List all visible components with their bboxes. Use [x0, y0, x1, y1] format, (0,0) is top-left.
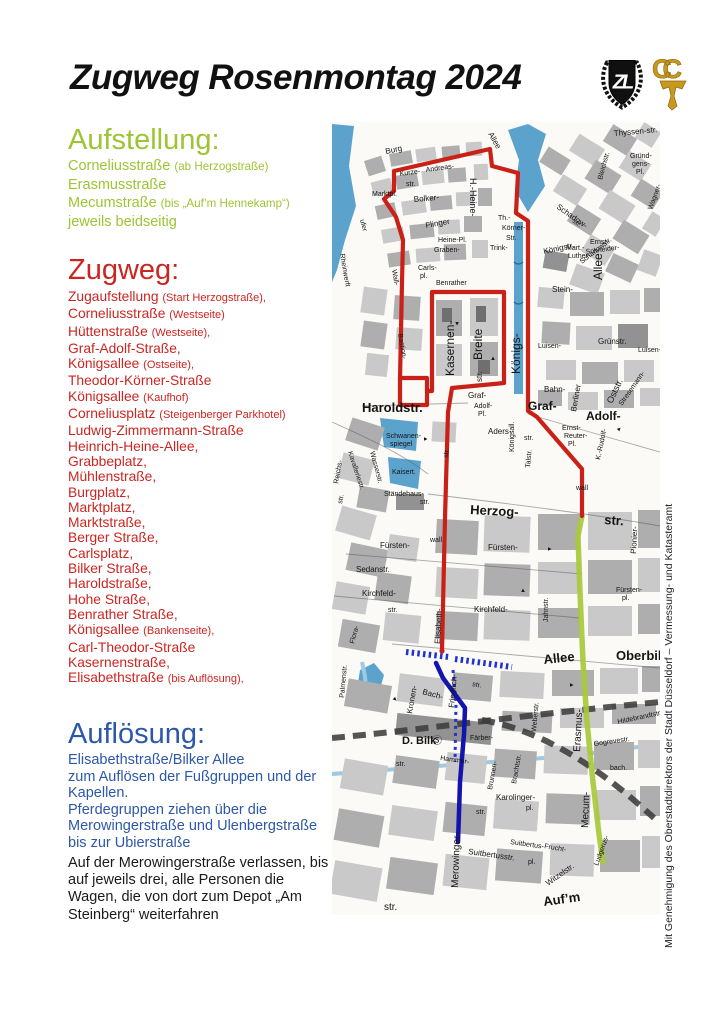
map-street-label: Heine-Pl. [438, 237, 467, 244]
map-street-label: Mecum- [580, 792, 592, 828]
city-block [493, 799, 539, 832]
street-line: Hüttenstraße (Westseite), [68, 324, 286, 341]
city-block [538, 514, 580, 550]
map-street-label: Luisen- [538, 343, 562, 350]
street-line: Königsallee (Bankenseite), [68, 622, 286, 639]
city-block [374, 572, 412, 604]
map-street-label: Benrather [436, 280, 467, 287]
city-block [478, 188, 492, 206]
city-block [431, 421, 456, 442]
street-line: Benrather Straße, [68, 607, 286, 622]
map-street-label: ▲ [546, 546, 552, 552]
map-street-label: bach. [610, 765, 627, 772]
map-street-label: Pl. [568, 441, 576, 448]
page-title: Zugweg Rosenmontag 2024 [70, 58, 521, 98]
map-street-label: wall [575, 485, 589, 492]
map-street-label: Kasernen- [443, 321, 457, 376]
map-street-label: Jahnstr. [543, 597, 550, 622]
map-street-label: Fürsten- [616, 587, 643, 594]
map-street-label: H.-Heine- [468, 178, 478, 217]
street-line: zum Auflösen der Fußgruppen und der [68, 769, 317, 786]
map-credit: Mit Genehmigung des Oberstadtdirektors d… [663, 498, 679, 948]
street-line: Carl-Theodor-Straße [68, 640, 286, 655]
map-street-label: Kaisert. [392, 469, 416, 476]
street-line: Burgplatz, [68, 485, 286, 500]
city-block [396, 673, 445, 706]
city-block [443, 802, 488, 836]
street-line: Steinberg“ weiterfahren [68, 907, 328, 924]
heading-aufstellung: Aufstellung: [68, 124, 220, 157]
cc-letters: CC [652, 54, 681, 84]
map-street-label: Sedanstr. [356, 565, 390, 574]
map-street-label: Aders- [488, 427, 512, 436]
map-street-label: Gründ- [630, 153, 652, 160]
city-block [638, 604, 660, 634]
map-street-label: Pionier- [629, 526, 639, 554]
map-street-label: str. [476, 809, 485, 816]
map-street-label: str. [384, 902, 397, 913]
map-street-label: Carls- [418, 265, 437, 272]
street-line: Auf der Merowingerstraße verlassen, bis [68, 855, 328, 872]
city-block [472, 240, 488, 258]
map-street-label: Erasmus- [572, 709, 585, 752]
city-block [642, 666, 660, 692]
map-street-label: Grünstr. [598, 337, 626, 346]
city-block [644, 288, 660, 312]
map-street-label: ▲ [454, 320, 460, 326]
map-street-label: str. [604, 512, 625, 528]
map-street-label: Elisabeth- [433, 608, 444, 644]
map-street-label: Kirchfeld- [474, 605, 508, 614]
map-street-label: Str. [506, 235, 517, 242]
street-line: auf jeweils drei, alle Personen die [68, 872, 328, 889]
street-line: Zugaufstellung (Start Herzogstraße), [68, 289, 286, 306]
street-line: Mecumstraße (bis „Auf’m Hennekamp“) [68, 194, 290, 213]
city-block [383, 612, 422, 644]
street-line: Corneliusstraße (Westseite) [68, 306, 286, 323]
street-line: Erasmusstraße [68, 176, 290, 194]
map-street-label: pl. [526, 805, 533, 812]
map-street-label: Marktpl. [372, 191, 397, 198]
street-line: Merowingerstraße und Ulenbergstraße [68, 818, 317, 835]
city-block [610, 290, 640, 314]
map-street-label: Allee [591, 253, 605, 280]
street-line: Haroldstraße, [68, 576, 286, 591]
map-street-label: Stein- [552, 285, 573, 294]
map-street-label: ▲ [490, 356, 496, 362]
route-map: BurgMarktpl.uferRheinwerftKurze-Andreas-… [332, 122, 660, 915]
map-street-label: Reuter- [564, 433, 588, 440]
map-street-label: ▲ [568, 682, 574, 688]
map-street-label: wall [429, 537, 443, 544]
map-street-label: Haroldstr. [362, 400, 423, 415]
document-page: Zugweg Rosenmontag 2024 ZL CC Aufstellun… [0, 0, 724, 1024]
city-block [388, 805, 438, 841]
city-block [360, 320, 387, 349]
street-line: Pferdegruppen ziehen über die [68, 802, 317, 819]
zl-shield-logo: ZL [599, 57, 645, 110]
street-line: Grabbeplatz, [68, 454, 286, 469]
street-line: Corneliusplatz (Steigenberger Parkhotel) [68, 406, 286, 423]
city-block [638, 510, 660, 548]
map-street-label: str. [396, 761, 405, 768]
map-street-label: Fürsten- [380, 541, 410, 550]
map-street-label: Graf- [528, 399, 557, 413]
map-street-label: Adolf- [586, 409, 621, 423]
map-street-label: pl. [528, 859, 535, 866]
street-line: Elisabethstraße (bis Auflösung), [68, 670, 286, 687]
map-street-label: Graf- [468, 391, 487, 400]
map-street-label: Luther- [568, 253, 591, 260]
map-street-label: str. [443, 448, 451, 458]
city-block [332, 581, 370, 614]
map-street-label: Graben- [434, 247, 460, 254]
heading-zugweg: Zugweg: [68, 254, 179, 287]
map-street-label: spiegel [390, 441, 413, 448]
route-red-end-marker [439, 648, 444, 653]
city-block [476, 306, 486, 322]
map-street-label: ▲ [520, 588, 526, 594]
street-line: jeweils beidseitig [68, 213, 290, 231]
street-line: Kasernenstraße, [68, 655, 286, 670]
city-block [546, 360, 576, 380]
map-street-label: Kirchfeld- [362, 589, 396, 598]
street-line: Graf-Adolf-Straße, [68, 341, 286, 356]
city-block [640, 388, 660, 406]
city-block [393, 295, 421, 321]
map-street-label: Ernst- [590, 239, 609, 246]
city-block [442, 308, 452, 322]
map-street-label: Luisen- [638, 347, 660, 354]
map-street-label: Merowinger- [450, 832, 463, 888]
city-block [464, 216, 482, 232]
city-block [588, 606, 632, 636]
city-block [600, 668, 638, 694]
city-block [499, 671, 544, 699]
map-street-label: str. [406, 181, 415, 188]
city-block [642, 836, 660, 868]
map-street-label: Breite [471, 328, 485, 360]
map-street-label: Karolinger- [496, 793, 535, 802]
street-line: Marktstraße, [68, 515, 286, 530]
map-street-label: Schwanen- [386, 433, 422, 440]
street-line: Carlsplatz, [68, 546, 286, 561]
map-street-label: Färber- [470, 735, 494, 742]
street-line: Königsallee (Kaufhof) [68, 389, 286, 406]
city-block [596, 790, 636, 820]
map-street-label: Pl. [478, 411, 486, 418]
map-street-label: Königs- [509, 333, 523, 374]
map-street-label: Fürsten- [488, 543, 518, 552]
shield-monogram: ZL [612, 72, 634, 94]
map-street-label: str. [475, 371, 484, 382]
map-street-label: pl. [420, 273, 427, 280]
street-line: Bilker Straße, [68, 561, 286, 576]
city-block [538, 562, 580, 594]
zugweg-list: Zugaufstellung (Start Herzogstraße),Corn… [68, 289, 286, 687]
cc-gold-logo: CC [648, 54, 698, 112]
city-block [360, 286, 387, 315]
street-line: Elisabethstraße/Bilker Allee [68, 752, 317, 769]
street-line: Heinrich-Heine-Allee, [68, 439, 286, 454]
map-street-label: Herzog- [470, 502, 519, 520]
street-line: Hohe Straße, [68, 592, 286, 607]
street-line: Marktplatz, [68, 500, 286, 515]
city-block [582, 362, 618, 384]
heading-aufloesung: Auflösung: [68, 718, 205, 751]
street-line: Königsallee (Ostseite), [68, 356, 286, 373]
city-block [570, 292, 604, 316]
aufloesung-list: Elisabethstraße/Bilker Alleezum Auflösen… [68, 752, 317, 852]
map-street-label: Ernst- [562, 425, 581, 432]
city-block [638, 740, 660, 768]
map-street-label: gens- [632, 161, 650, 168]
map-street-label: Bahn- [544, 385, 566, 394]
map-street-label: Mart.- [566, 245, 585, 252]
map-street-label: Adolf- [474, 403, 493, 410]
street-line: Wagen, die von dort zum Depot „Am [68, 889, 328, 906]
note-paragraph: Auf der Merowingerstraße verlassen, bisa… [68, 855, 328, 924]
map-street-label: Th.- [498, 215, 511, 222]
map-street-label: Pl. [636, 169, 644, 176]
map-street-label: ▲ [422, 436, 428, 442]
map-street-label: Körner- [502, 225, 526, 232]
map-street-label: str. [388, 607, 397, 614]
street-line: Kapellen. [68, 785, 317, 802]
map-street-label: Oberbilk [616, 648, 660, 663]
map-street-label: Ⓢ [432, 735, 442, 747]
street-line: bis zur Ubierstraße [68, 835, 317, 852]
street-line: Mühlenstraße, [68, 469, 286, 484]
street-line: Corneliusstraße (ab Herzogstraße) [68, 157, 290, 176]
city-block [386, 857, 438, 895]
street-line: Theodor-Körner-Straße [68, 373, 286, 388]
map-street-label: str. [420, 499, 429, 506]
map-street-label: Trink- [490, 245, 508, 252]
street-line: Ludwig-Zimmermann-Straße [68, 423, 286, 438]
map-street-label: Ständehaus- [384, 491, 424, 498]
map-street-label: pl. [622, 595, 629, 602]
city-block [365, 353, 389, 377]
map-street-label: str. [524, 435, 533, 442]
city-block [541, 321, 570, 344]
street-line: Berger Straße, [68, 530, 286, 545]
aufstellung-list: Corneliusstraße (ab Herzogstraße)Erasmus… [68, 157, 290, 231]
jester-figure [660, 81, 686, 110]
